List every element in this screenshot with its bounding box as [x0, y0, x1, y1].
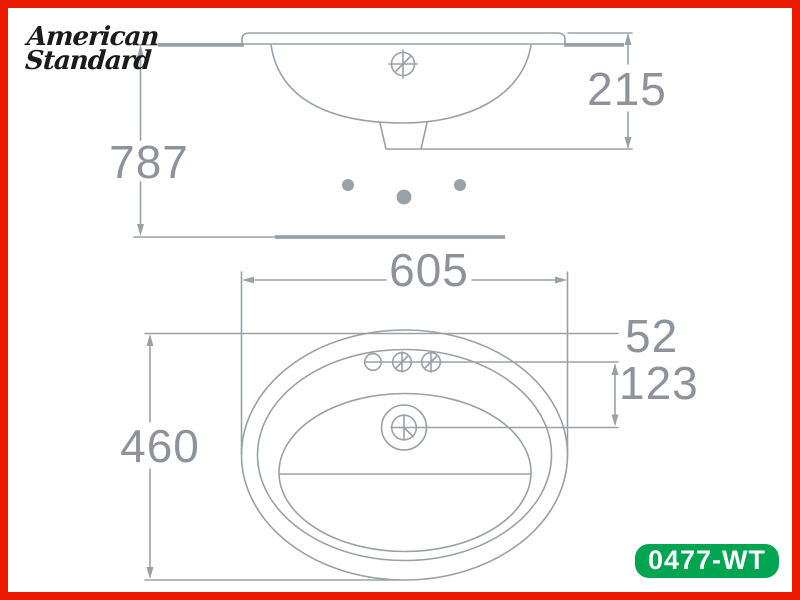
basin-bowl-profile [271, 45, 531, 123]
drain-outlet-profile [380, 123, 427, 149]
dimension-label-52: 52 [625, 313, 678, 359]
drain-icon [382, 405, 619, 450]
dimension-label-123: 123 [619, 360, 699, 406]
technical-drawing [8, 8, 800, 600]
basin-rim-profile [242, 33, 565, 44]
dimension-label-605: 605 [379, 247, 479, 293]
dimension-label-215: 215 [577, 66, 677, 112]
plan-view-drawing [145, 272, 619, 580]
dimension-label-787: 787 [99, 139, 199, 185]
inner-rim-oval [258, 350, 552, 561]
brand-logo: American Standard [24, 26, 159, 74]
dimension-line-123 [612, 364, 619, 427]
brand-logo-line2: Standard [24, 50, 157, 74]
outer-rim-oval [242, 330, 568, 580]
overflow-symbol-icon [389, 50, 417, 78]
side-view-drawing [134, 33, 632, 237]
basin-oval [279, 394, 531, 552]
model-number-badge: 0477-WT [632, 541, 782, 581]
spec-sheet: American Standard 787 215 605 52 123 460… [0, 0, 800, 600]
dimension-label-460: 460 [110, 423, 210, 469]
mounting-dots-icon [342, 179, 466, 204]
